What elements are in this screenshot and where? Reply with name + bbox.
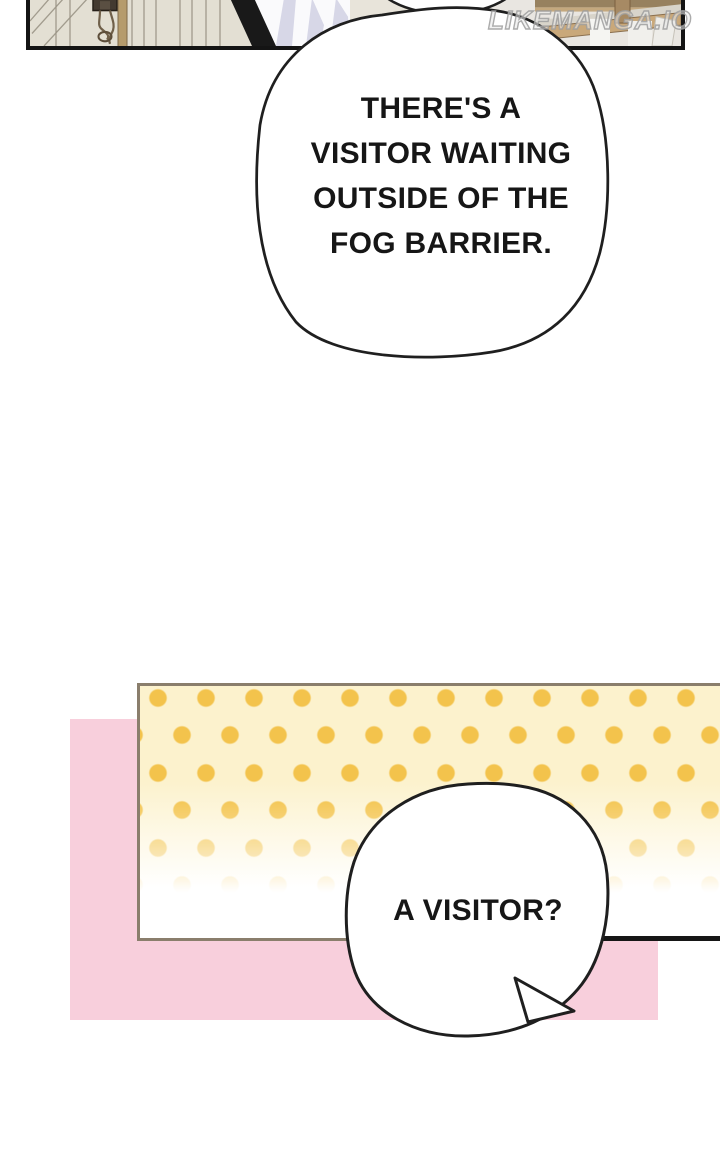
bubble1-line1: THERE'S A xyxy=(280,86,602,131)
bubble1-text: THERE'S A VISITOR WAITING OUTSIDE OF THE… xyxy=(280,86,602,266)
bubble1-line4: FOG BARRIER. xyxy=(280,221,602,266)
bubble2-text: A VISITOR? xyxy=(358,888,598,933)
site-watermark: LIKEMANGA.IO xyxy=(488,5,692,36)
manga-page: THERE'S A VISITOR WAITING OUTSIDE OF THE… xyxy=(0,0,720,1152)
panel-bottom-line xyxy=(552,936,720,941)
bubble1-line3: OUTSIDE OF THE xyxy=(280,176,602,221)
bubble1-line2: VISITOR WAITING xyxy=(280,131,602,176)
